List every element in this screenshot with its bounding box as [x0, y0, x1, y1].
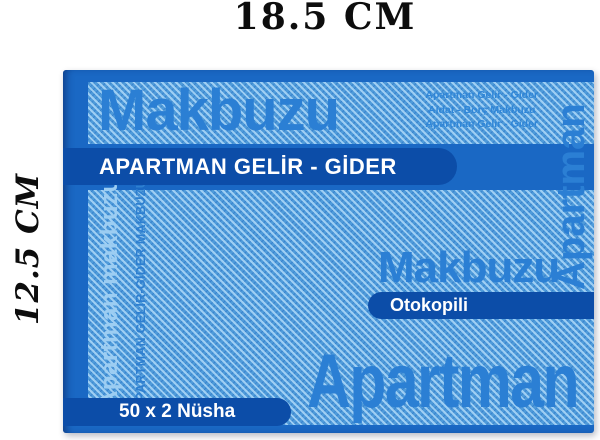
fine-print-line: Apartman Gelir - Gider [425, 117, 538, 132]
dimension-label-width: 18.5 CM [160, 0, 490, 38]
watermark-apartman-bottom: Apartman [307, 342, 578, 422]
fine-print-line: Aidat - Borç Makbuzu [425, 103, 538, 118]
dimension-label-height: 12.5 CM [7, 147, 49, 351]
watermark-makbuzu-top: Makbuzu [98, 84, 339, 138]
edge-text-apartman-right: Apartman [550, 88, 592, 290]
fine-print-line: Apartman Gelir - Gider [425, 88, 538, 103]
title-banner: APARTMAN GELİR - GİDER [63, 148, 457, 185]
product-photo: 18.5 CM 12.5 CM Makbuzu Apartman Gelir -… [0, 0, 600, 440]
receipt-book-cover: Makbuzu Apartman Gelir - Gider Aidat - B… [63, 70, 594, 433]
spine-text-large: Apartman makbuzu [92, 188, 128, 408]
spine-text-small: APARTMAN GELİR-GİDER MAKBUZU [130, 190, 152, 410]
fine-print-block: Apartman Gelir - Gider Aidat - Borç Makb… [425, 88, 538, 132]
watermark-makbuzu-mid: Makbuzu [378, 244, 559, 292]
otokopili-banner: Otokopili [368, 292, 594, 319]
count-banner: 50 x 2 Nüsha [63, 398, 291, 426]
